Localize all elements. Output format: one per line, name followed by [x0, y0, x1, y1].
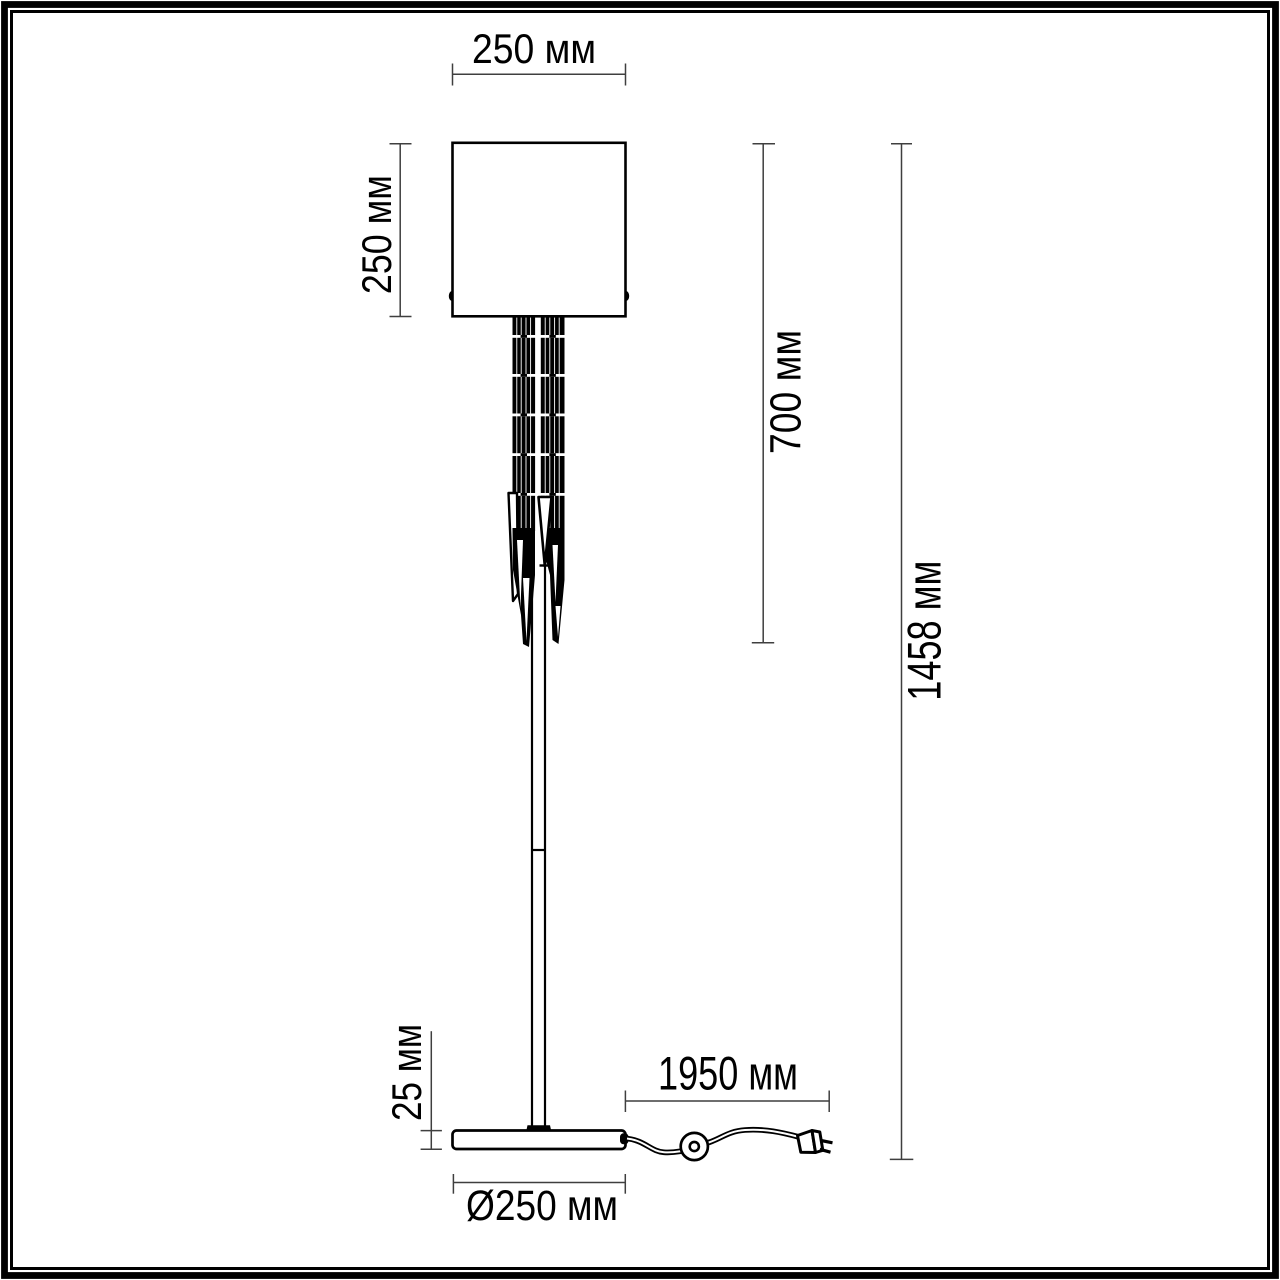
svg-text:250 мм: 250 мм	[353, 175, 400, 294]
svg-text:1458 мм: 1458 мм	[897, 561, 950, 701]
svg-text:250 мм: 250 мм	[472, 25, 596, 72]
svg-text:Ø250 мм: Ø250 мм	[466, 1182, 618, 1230]
svg-text:700 мм: 700 мм	[762, 330, 811, 454]
svg-text:25 мм: 25 мм	[383, 1024, 430, 1121]
svg-text:1950 мм: 1950 мм	[658, 1048, 798, 1101]
